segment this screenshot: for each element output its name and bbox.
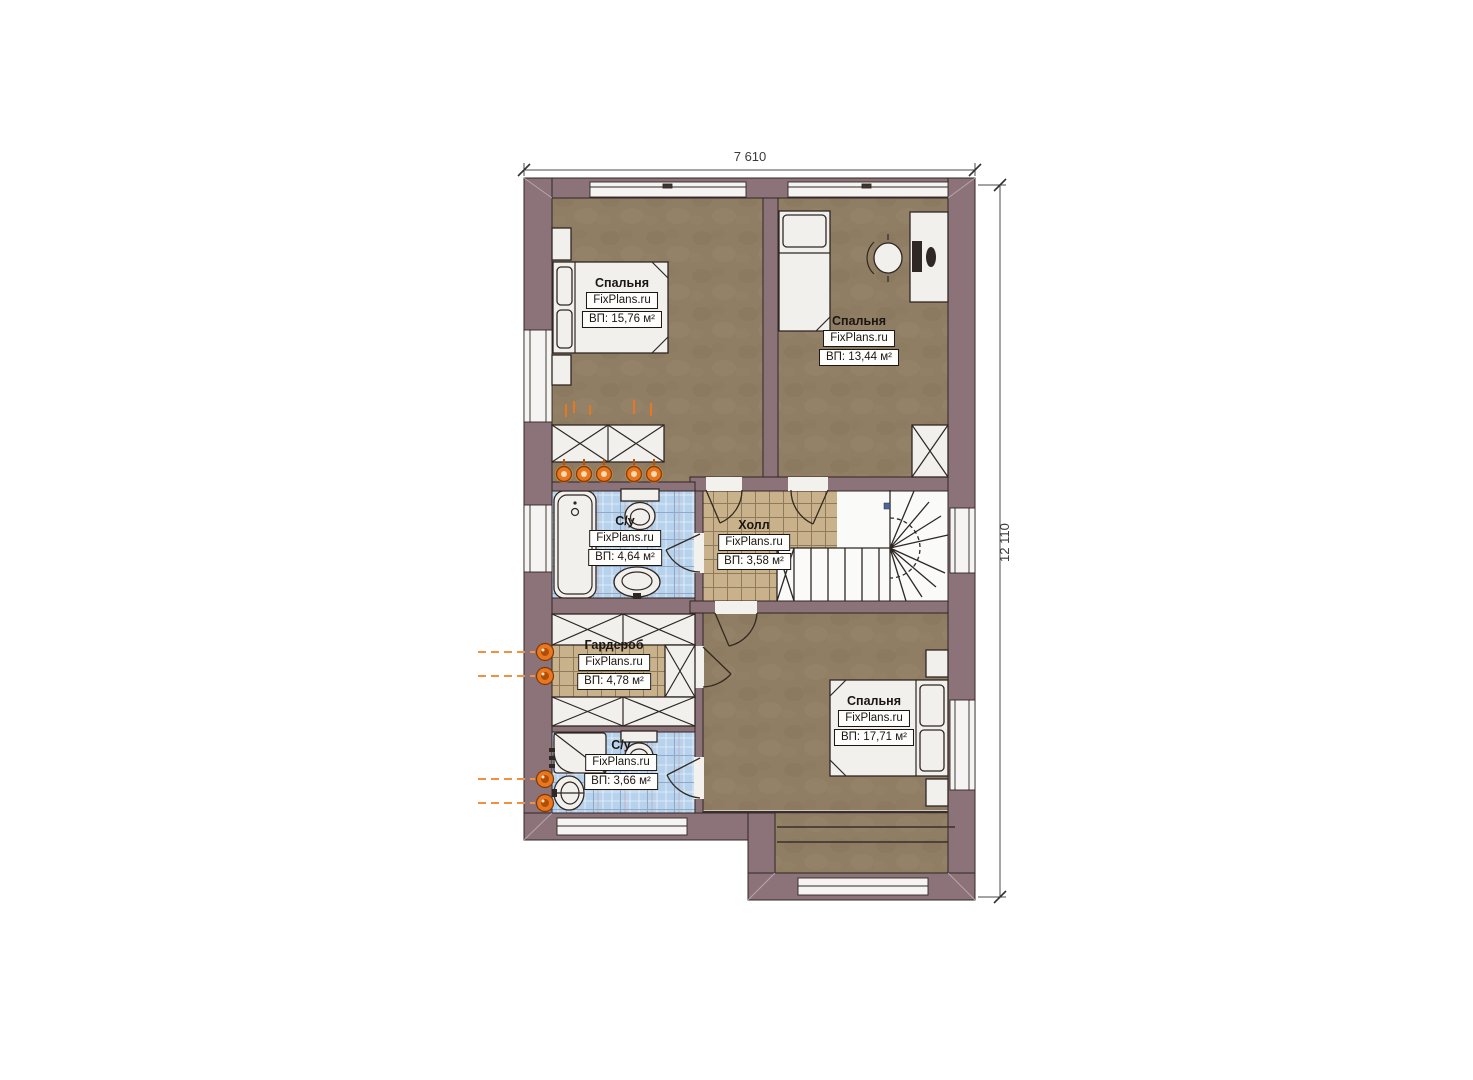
watermark-label: FixPlans.ru (586, 292, 658, 309)
window-bottom-left (557, 818, 687, 835)
radiator-icon (537, 771, 554, 788)
wall-between-bedrooms (763, 198, 778, 477)
door-opening-bathroom-upper (694, 533, 704, 573)
dimension-width-label: 7 610 (734, 149, 767, 164)
room-label-bedroom-bottom: Спальня FixPlans.ru ВП: 17,71 м² (834, 694, 914, 746)
single-bed-top-right (779, 211, 830, 331)
room-name: С/у (611, 738, 630, 752)
room-name: Спальня (847, 694, 901, 708)
door-opening-bedroom1 (706, 477, 742, 491)
window-left-bathroom (524, 505, 552, 572)
room-label-bathroom-lower: С/у FixPlans.ru ВП: 3,66 м² (584, 738, 658, 790)
room-name: Гардероб (584, 638, 643, 652)
room-area-label: ВП: 3,58 м² (717, 553, 791, 570)
radiator-icon (537, 644, 554, 661)
wall-bathroom-upper-south (552, 598, 695, 614)
dimension-height-label: 12 110 (997, 523, 1012, 562)
window-top-bedroom1 (590, 182, 746, 197)
window-left-bedroom1 (524, 330, 552, 422)
nightstand (926, 779, 948, 806)
radiator-icon (537, 668, 554, 685)
room-label-hall: Холл FixPlans.ru ВП: 3,58 м² (717, 518, 791, 570)
floor-balcony (775, 813, 948, 874)
room-label-bedroom-top-right: Спальня FixPlans.ru ВП: 13,44 м² (819, 314, 899, 366)
room-area-label: ВП: 3,66 м² (584, 773, 658, 790)
room-name: Холл (738, 518, 769, 532)
room-area-label: ВП: 13,44 м² (819, 349, 899, 366)
closet-bedroom-top-right (912, 425, 948, 477)
nightstand (926, 650, 948, 677)
desk (910, 212, 948, 302)
door-opening-bedroom-bottom (715, 601, 757, 614)
room-name: Спальня (832, 314, 886, 328)
watermark-label: FixPlans.ru (838, 710, 910, 727)
nightstand (552, 355, 571, 385)
watermark-label: FixPlans.ru (585, 754, 657, 771)
window-right-stairs (950, 508, 975, 573)
radiator-icon (537, 795, 554, 812)
door-opening-bedroom2 (788, 477, 828, 491)
monitor-icon (912, 241, 922, 272)
window-bottom-balcony (798, 878, 928, 895)
room-area-label: ВП: 4,78 м² (577, 673, 651, 690)
watermark-label: FixPlans.ru (589, 530, 661, 547)
nightstand (552, 228, 571, 260)
room-label-bedroom-top-left: Спальня FixPlans.ru ВП: 15,76 м² (582, 276, 662, 328)
stair-marker (884, 503, 890, 509)
room-name: Спальня (595, 276, 649, 290)
watermark-label: FixPlans.ru (823, 330, 895, 347)
window-top-bedroom2 (788, 182, 948, 197)
pc-speaker-icon (926, 247, 936, 267)
room-label-bathroom-upper: С/у FixPlans.ru ВП: 4,64 м² (588, 514, 662, 566)
watermark-label: FixPlans.ru (578, 654, 650, 671)
room-label-wardrobe: Гардероб FixPlans.ru ВП: 4,78 м² (577, 638, 651, 690)
room-area-label: ВП: 4,64 м² (588, 549, 662, 566)
closet-bedroom-top-left (552, 425, 664, 462)
room-name: С/у (615, 514, 634, 528)
window-right-bedroom-bottom (950, 700, 975, 790)
watermark-label: FixPlans.ru (718, 534, 790, 551)
room-area-label: ВП: 15,76 м² (582, 311, 662, 328)
room-area-label: ВП: 17,71 м² (834, 729, 914, 746)
door-opening-bathroom-lower (694, 757, 704, 799)
